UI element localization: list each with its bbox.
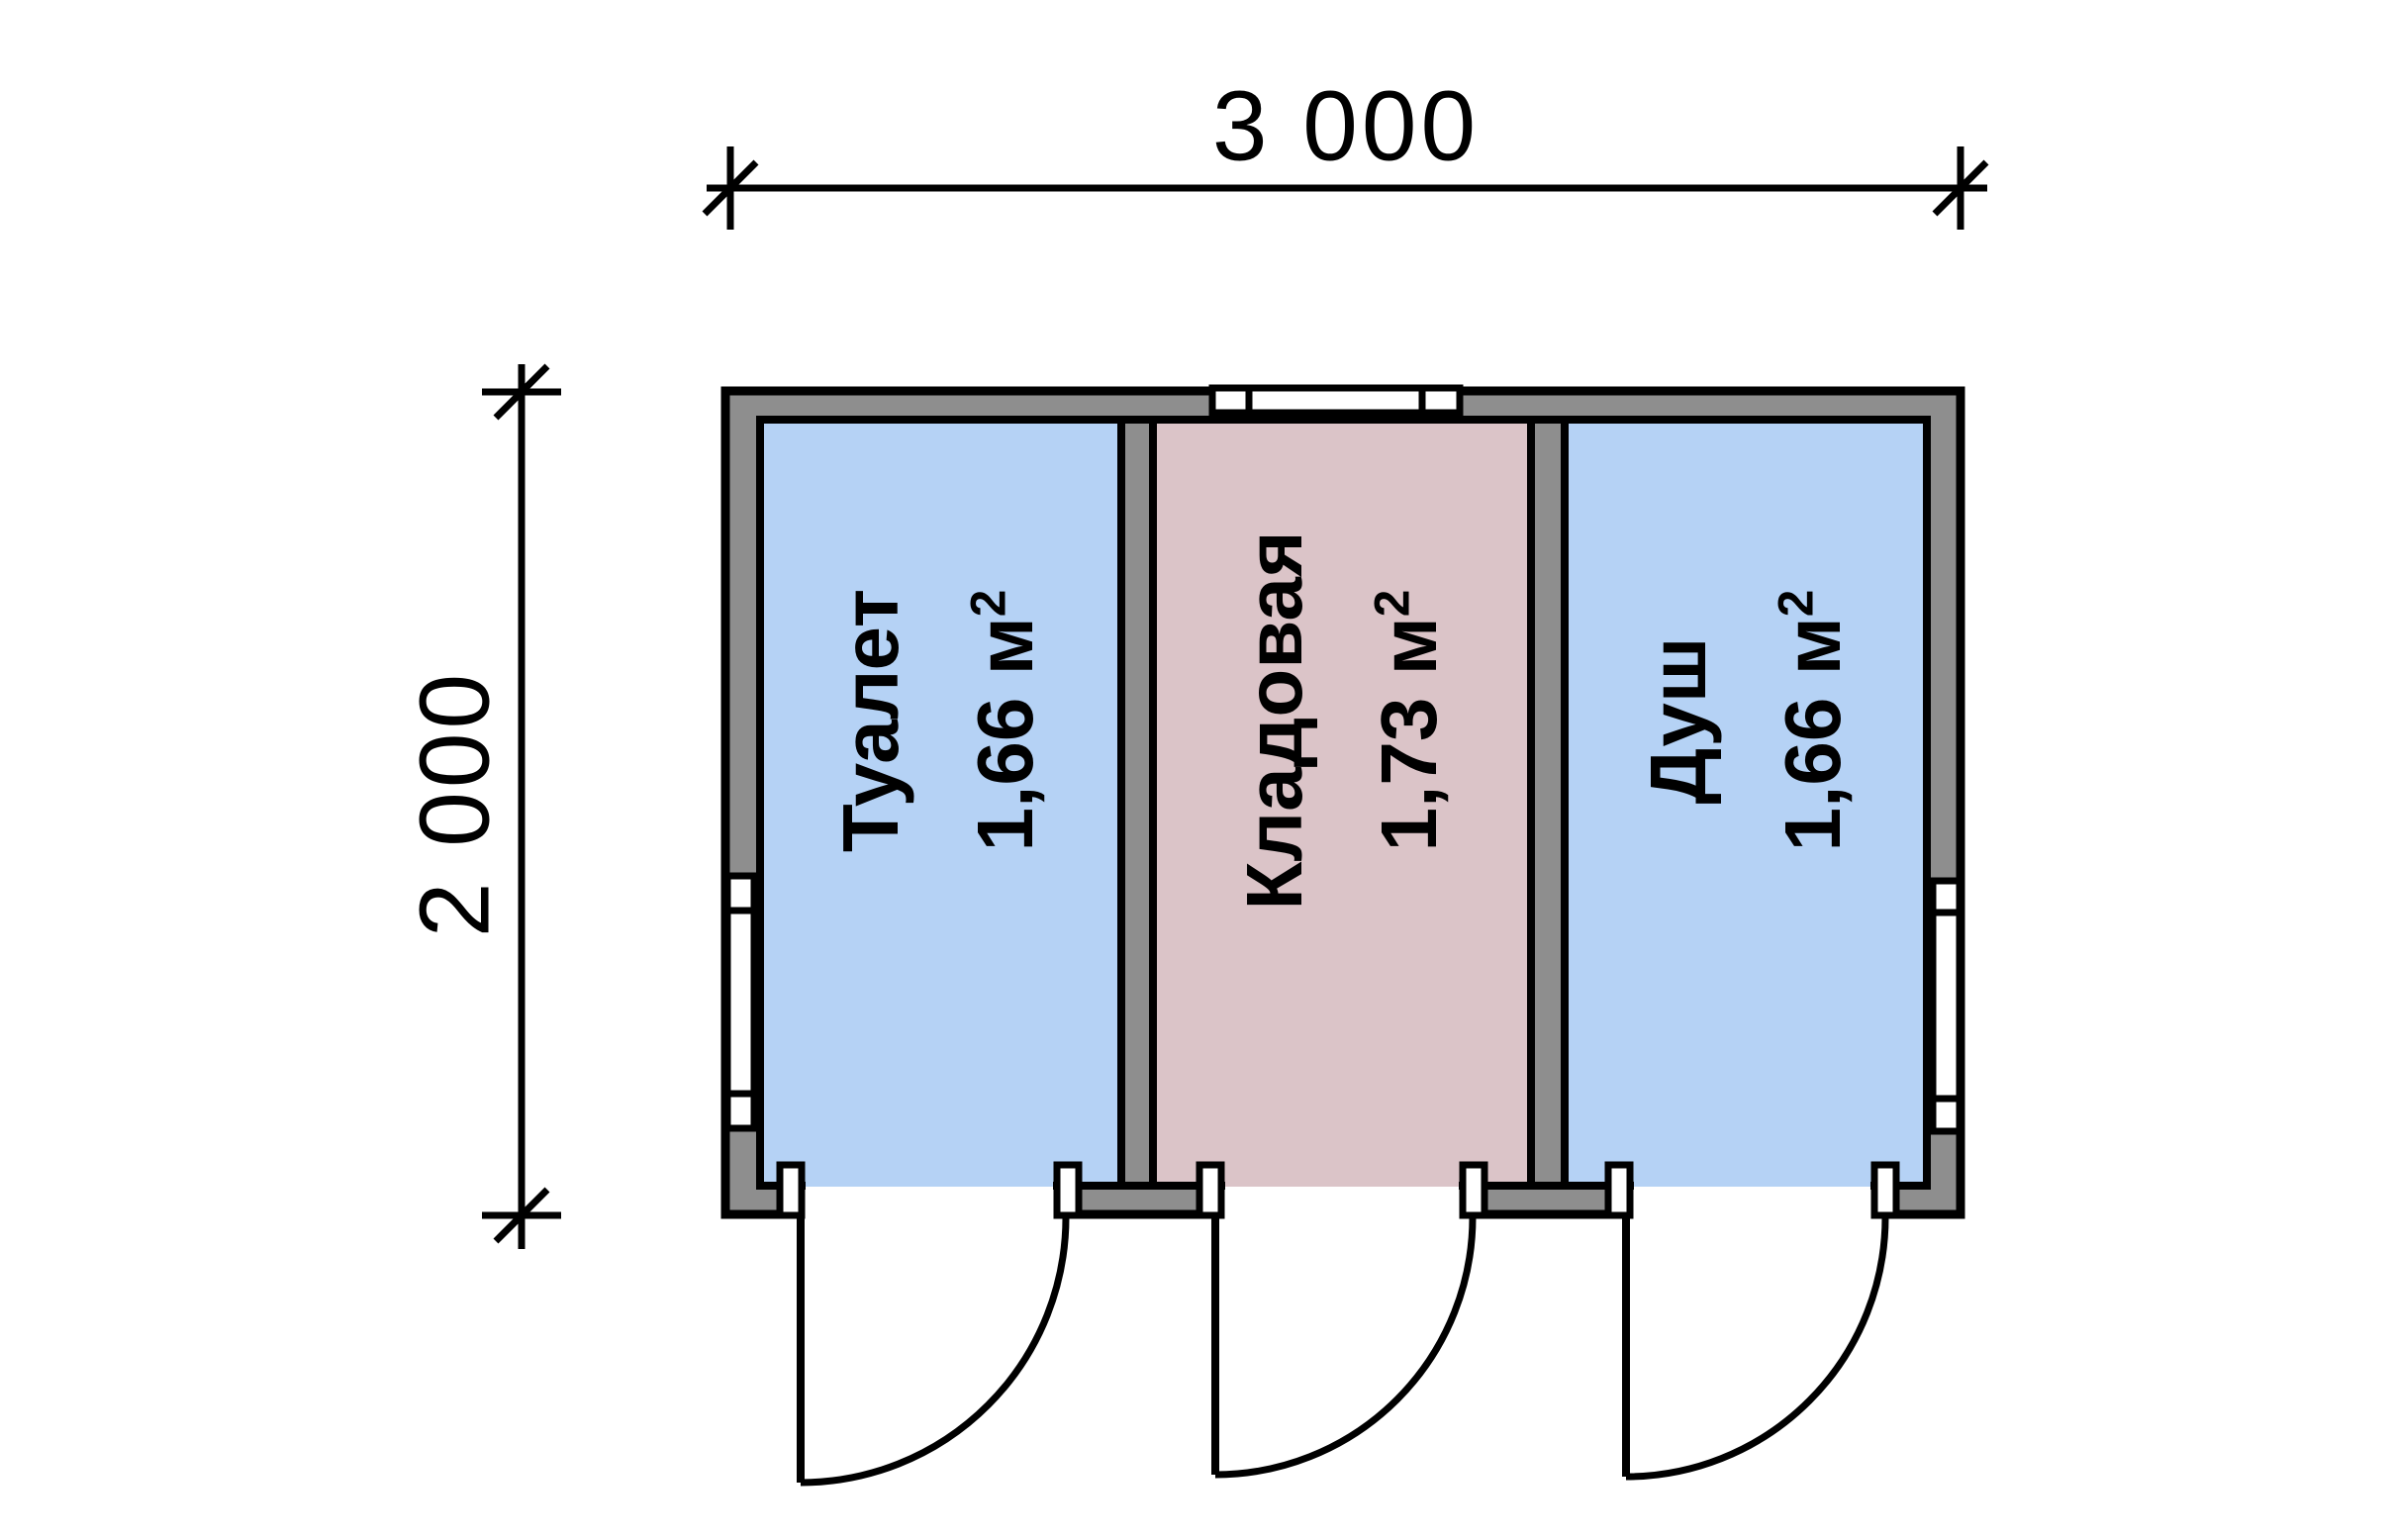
room-label-storage: Кладовая 1,73 м2 — [1207, 530, 1477, 910]
door-opening-shower — [1632, 1187, 1872, 1222]
door-jamb — [1199, 1165, 1221, 1215]
dimension-height-label: 2 000 — [399, 670, 513, 937]
room-label-toilet: Туалет 1,66 м2 — [804, 589, 1073, 852]
door-swing-arc — [1626, 1217, 1885, 1477]
door-jamb — [1057, 1165, 1079, 1215]
window-top — [1212, 388, 1460, 413]
room-area: 1,73 м2 — [1342, 530, 1477, 910]
window-left — [727, 876, 754, 1128]
door-swing-arc — [1215, 1217, 1473, 1475]
window-right — [1933, 881, 1960, 1131]
door-opening-toilet — [804, 1187, 1055, 1222]
room-name: Кладовая — [1207, 530, 1342, 910]
floor-plan-canvas: 3 000 2 000 Туалет 1,66 м2 Кладовая 1,73… — [0, 0, 2393, 1540]
door-jamb — [1463, 1165, 1484, 1215]
room-area: 1,66 м2 — [1746, 590, 1880, 852]
door-jamb — [1608, 1165, 1630, 1215]
door-swing-arc — [801, 1217, 1066, 1483]
room-area: 1,66 м2 — [938, 589, 1073, 852]
door-jamb — [1874, 1165, 1896, 1215]
door-jamb — [780, 1165, 802, 1215]
floor-plan-drawing — [0, 0, 2393, 1540]
room-label-shower: Душ 1,66 м2 — [1611, 590, 1880, 852]
room-name: Душ — [1611, 590, 1746, 852]
door-openings — [804, 1187, 1872, 1222]
dimension-width-label: 3 000 — [1212, 70, 1480, 184]
door-opening-storage — [1223, 1187, 1461, 1222]
room-name: Туалет — [804, 589, 938, 852]
